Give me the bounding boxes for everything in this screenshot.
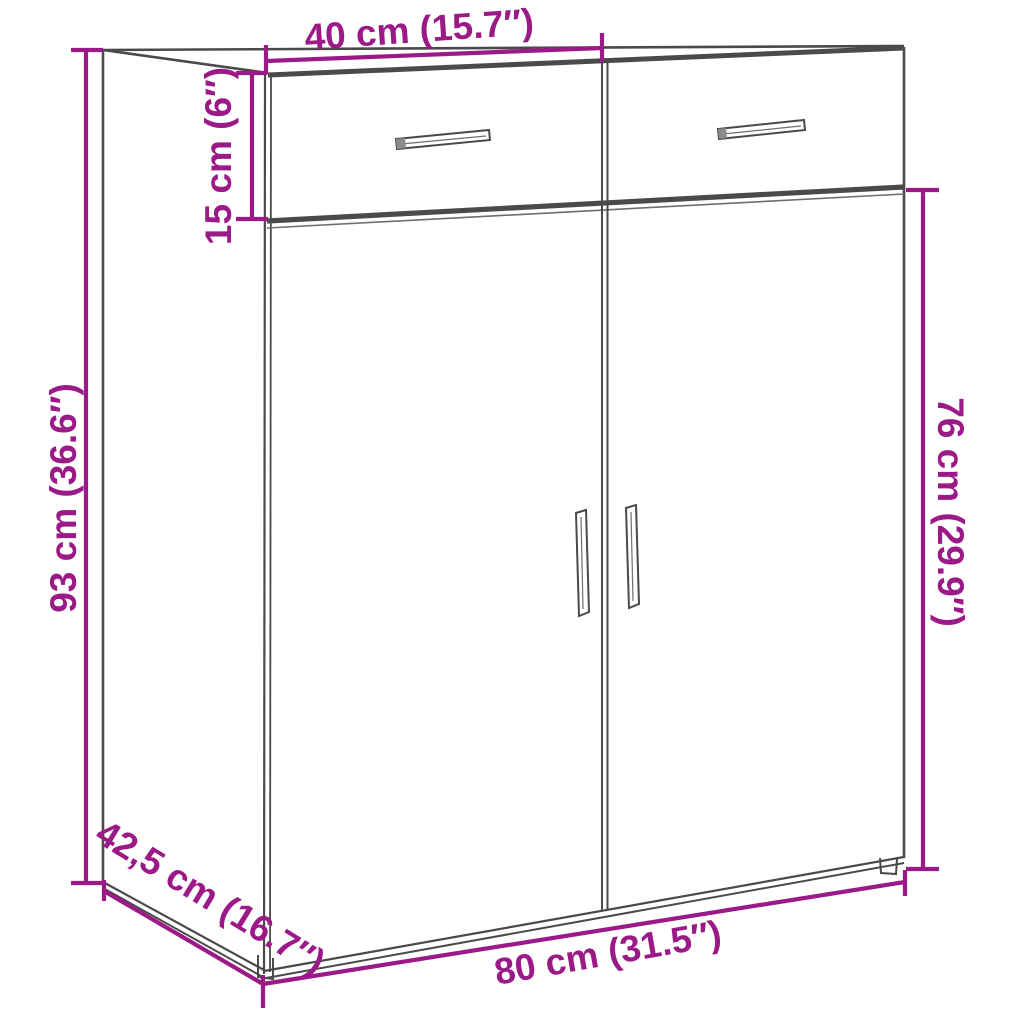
drawer-door-divider-lower [267,194,904,228]
cabinet-top-left-edge [103,50,268,73]
door-handle-left [576,510,589,616]
drawer-door-divider [267,187,904,221]
door-handle-right [626,505,639,608]
dim-label-depth: 42,5 cm (16.7″) [89,812,332,983]
drawer-handle-left [396,130,490,149]
dim-label-drawer-width: 40 cm (15.7″) [303,1,535,58]
dim-line-drawer-height [236,73,268,219]
diagram-canvas: 40 cm (15.7″) 15 cm (6″) 93 cm (36.6″) 7… [0,0,1024,1024]
furniture-dimension-diagram: 40 cm (15.7″) 15 cm (6″) 93 cm (36.6″) 7… [0,0,1024,1024]
cabinet-front-left-edge-outer [264,74,265,974]
cabinet-front-left-edge-inner [270,74,271,972]
dim-label-overall-height: 93 cm (36.6″) [43,383,84,613]
dim-label-door-section-height: 76 cm (29.9″) [930,397,971,627]
dimension-labels: 40 cm (15.7″) 15 cm (6″) 93 cm (36.6″) 7… [43,1,971,993]
cabinet-top-back-edge [103,46,904,50]
drawer-handle-right [718,120,805,139]
dim-label-drawer-height: 15 cm (6″) [198,67,239,245]
